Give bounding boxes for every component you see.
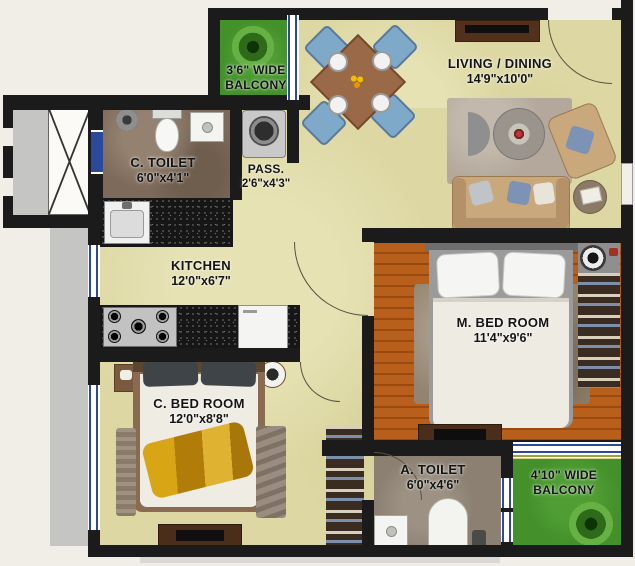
living-dining-dims: 14'9"x10'0" [415, 72, 585, 88]
kitchen-label: KITCHEN 12'0"x6'7" [140, 258, 262, 290]
dinner-plate [371, 93, 391, 113]
kitchen-dims: 12'0"x6'7" [140, 274, 262, 290]
wall-upper-horizontal [3, 95, 310, 110]
bottom-balcony-line2: BALCONY [516, 483, 612, 498]
c-toilet-label: C. TOILET 6'0"x4'1" [108, 155, 218, 187]
m-bedroom-label: M. BED ROOM 11'4"x9'6" [428, 315, 578, 347]
wall-lift-bottom [3, 215, 103, 228]
living-room-window [621, 163, 633, 205]
wall-right [621, 8, 633, 557]
table-flowers [349, 73, 365, 89]
living-dining-name: LIVING / DINING [415, 56, 585, 72]
sofa-armrest [556, 178, 569, 228]
shower-head [116, 109, 138, 131]
wall-mbedroom-top [374, 228, 633, 243]
lift-duct [13, 108, 48, 215]
top-balcony-label: 3'6" WIDE BALCONY [214, 63, 298, 93]
c-bedroom-name: C. BED ROOM [130, 396, 268, 412]
bottom-balcony-label: 4'10" WIDE BALCONY [516, 468, 612, 498]
side-corridor-strip [50, 228, 88, 546]
m-bedroom-name: M. BED ROOM [428, 315, 578, 331]
m-bedroom-dims: 11'4"x9'6" [428, 331, 578, 347]
c-toilet-dims: 6'0"x4'1" [108, 171, 218, 187]
kitchen-faucet [122, 202, 132, 209]
a-toilet-wc [428, 498, 468, 550]
refrigerator-handle [243, 310, 257, 313]
washbasin-drain [202, 122, 213, 133]
wall-bottom [88, 545, 633, 557]
lift-shaft-x [48, 108, 91, 215]
passage-label: PASS. 2'6"x4'3" [228, 162, 304, 191]
dinner-plate [328, 95, 348, 115]
top-balcony-line2: BALCONY [214, 78, 298, 93]
floor-plan: 3'6" WIDE BALCONY LIVING / DINING 14'9"x… [0, 0, 635, 566]
a-toilet-basin-drain [386, 526, 397, 537]
wall-mbedroom-left [362, 316, 374, 445]
kitchen-sink-basin [110, 210, 144, 238]
stove-burner [131, 319, 146, 334]
a-toilet-label: A. TOILET 6'0"x4'6" [380, 462, 486, 494]
m-bed-pillow [502, 251, 566, 298]
top-balcony-line1: 3'6" WIDE [214, 63, 298, 78]
lift-vent-gap [3, 128, 13, 146]
c-bedside-items [120, 370, 132, 380]
stove-burner [108, 310, 121, 323]
a-toilet-tap [472, 530, 486, 546]
wall-passage-right [287, 100, 299, 163]
stove-burner [108, 330, 121, 343]
wall-mbedroom-left-stub [362, 228, 374, 242]
c-toilet-name: C. TOILET [108, 155, 218, 171]
bottom-balcony-line1: 4'10" WIDE [516, 468, 612, 483]
c-bedroom-rug [116, 428, 136, 516]
a-toilet-balcony-window [501, 512, 513, 542]
stove-burner [156, 330, 169, 343]
c-bedroom-label: C. BED ROOM 12'0"x8'8" [130, 396, 268, 428]
wall-top [208, 8, 548, 20]
a-toilet-balcony-window [501, 478, 513, 508]
sofa-pillow-blue [506, 180, 531, 205]
kitchen-name: KITCHEN [140, 258, 262, 274]
bottom-shadow-strip [140, 557, 500, 563]
stove-burner [156, 310, 169, 323]
lift-door [91, 130, 103, 174]
wall-lift-left [3, 95, 13, 228]
kitchen-window [88, 245, 100, 297]
c-bedroom-dims: 12'0"x8'8" [130, 412, 268, 428]
wall-atoilet-left [362, 500, 374, 557]
lift-vent-gap [3, 178, 13, 196]
c-bedroom-window [88, 385, 100, 530]
wall-kitchen-cbedroom [88, 348, 300, 362]
tv-screen [465, 25, 529, 33]
toilet-bowl [155, 118, 179, 152]
wall-atoilet-left-stub [362, 445, 374, 455]
washing-machine-drum [249, 116, 279, 146]
m-wardrobe-clothes [578, 273, 620, 388]
living-dining-label: LIVING / DINING 14'9"x10'0" [415, 56, 585, 88]
sofa-armrest [453, 178, 466, 228]
dinner-plate [372, 51, 392, 71]
a-toilet-name: A. TOILET [380, 462, 486, 478]
a-toilet-dims: 6'0"x4'6" [380, 478, 486, 494]
passage-name: PASS. [228, 162, 304, 177]
m-wardrobe-fan [580, 245, 606, 271]
c-bedroom-rug [256, 426, 286, 518]
m-bed-pillow [436, 251, 500, 298]
bottom-balcony-plant [565, 500, 617, 548]
c-bed-pillow [143, 360, 199, 387]
m-wardrobe-red-item [609, 248, 618, 256]
dinner-plate [328, 52, 348, 72]
m-bedroom-balcony-window [513, 442, 621, 458]
c-tv-screen [176, 530, 224, 541]
table-flower [513, 128, 525, 140]
c-bed-pillow [201, 360, 257, 387]
sofa-pillow [533, 182, 556, 206]
passage-dims: 2'6"x4'3" [228, 177, 304, 191]
